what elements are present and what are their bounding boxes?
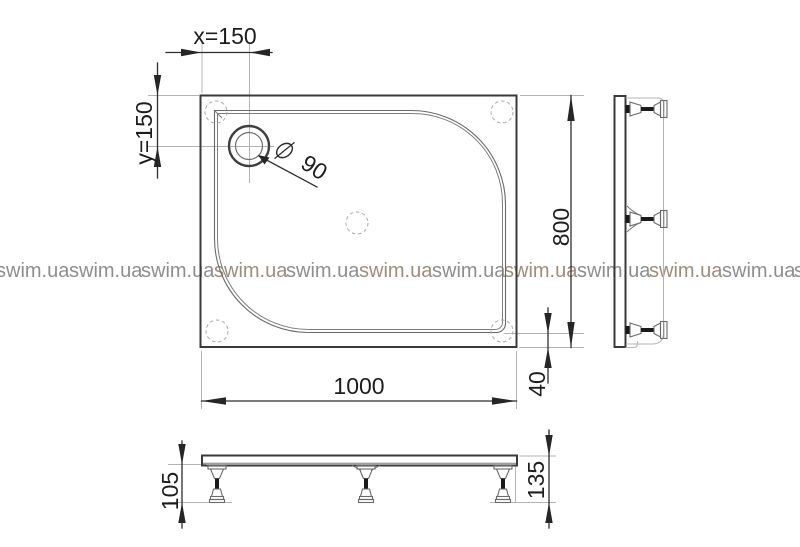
dim-label-1000: 1000 bbox=[333, 373, 384, 399]
side-tray-edge bbox=[615, 96, 626, 347]
dim-label-drain-90: 90 bbox=[297, 149, 333, 185]
basin-outline-outer bbox=[214, 110, 505, 332]
side-foot-bottom bbox=[626, 322, 668, 339]
dimension-height-800: 800 bbox=[548, 96, 575, 348]
plan-view: x=150 y=150 800 40 bbox=[131, 23, 584, 409]
front-leg-left bbox=[208, 466, 226, 503]
side-foot-middle bbox=[626, 206, 668, 232]
dimension-x-offset: x=150 bbox=[166, 23, 272, 56]
dim-label-105: 105 bbox=[157, 472, 183, 510]
dim-label-y150: y=150 bbox=[131, 101, 157, 164]
side-foot-top bbox=[626, 101, 668, 118]
dim-label-x150: x=150 bbox=[193, 23, 256, 49]
dim-label-135: 135 bbox=[523, 461, 549, 499]
foot-marker bbox=[206, 320, 228, 342]
foot-marker bbox=[346, 212, 368, 234]
dimension-y-offset: y=150 bbox=[131, 63, 161, 178]
front-leg-right bbox=[494, 466, 512, 503]
drawing-sheet: swim.ua swim.ua swim.ua swim.ua swim.ua … bbox=[0, 0, 800, 547]
dim-label-800: 800 bbox=[548, 208, 574, 246]
foot-marker bbox=[491, 101, 513, 123]
front-view: 105 135 bbox=[157, 430, 556, 528]
dim-label-40: 40 bbox=[524, 371, 550, 397]
technical-drawing: x=150 y=150 800 40 bbox=[0, 0, 800, 547]
front-leg-middle bbox=[352, 466, 380, 503]
basin-outline-inner bbox=[217, 113, 502, 329]
side-view bbox=[615, 96, 668, 348]
dimension-rim-40: 40 bbox=[524, 308, 552, 397]
front-tray-slab bbox=[202, 456, 517, 466]
dimension-width-1000: 1000 bbox=[202, 373, 517, 405]
dimension-total-height-135: 135 bbox=[523, 430, 553, 528]
dimension-leg-height-105: 105 bbox=[157, 441, 186, 528]
